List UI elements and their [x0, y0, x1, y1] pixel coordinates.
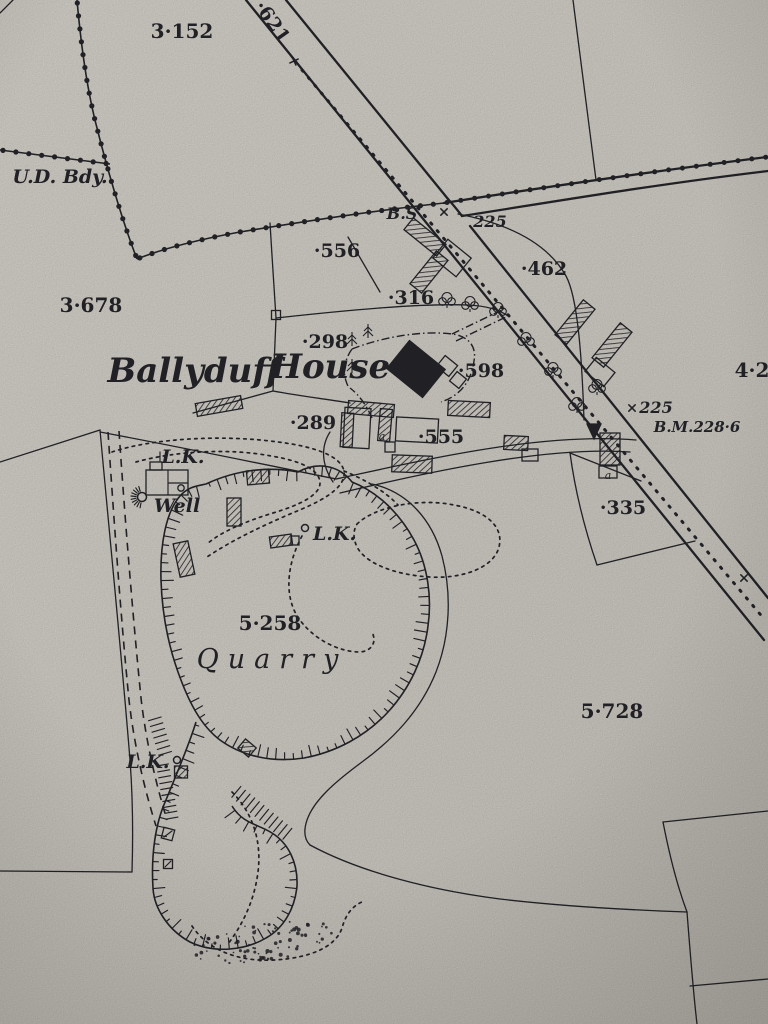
photo-vignette-overlay: [0, 0, 768, 1024]
map-photo-frame: 3·152 ·621 U.D. Bdy. B.S 225 ·556 ·462 3…: [0, 0, 768, 1024]
ordnance-survey-map: 3·152 ·621 U.D. Bdy. B.S 225 ·556 ·462 3…: [0, 0, 768, 1024]
